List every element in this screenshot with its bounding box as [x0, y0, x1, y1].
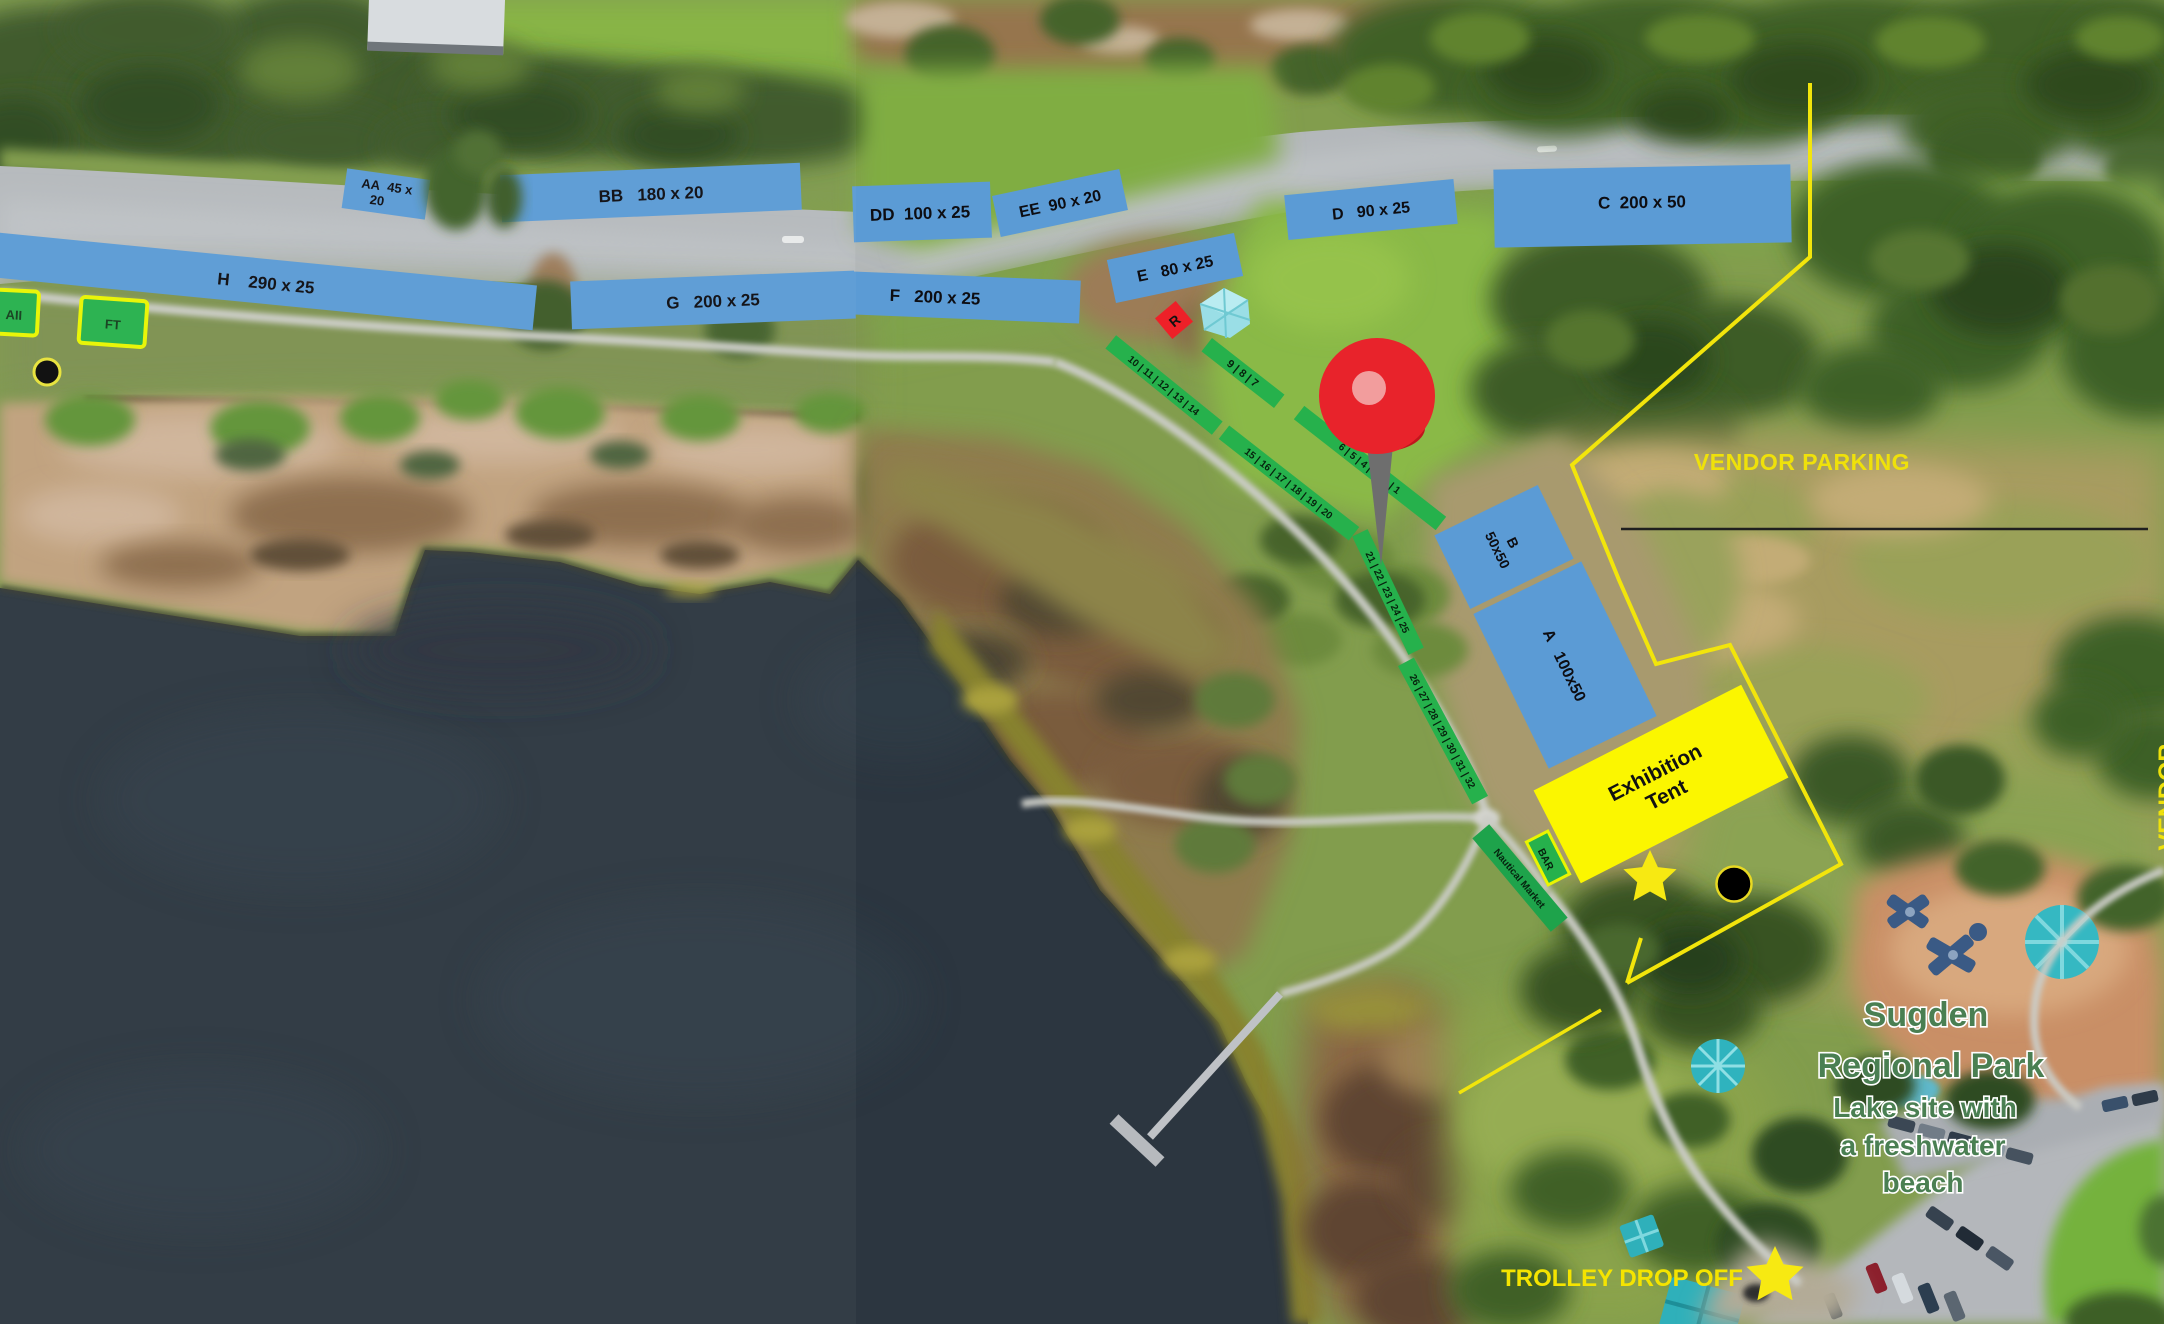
svg-text:TROLLEY DROP OFF: TROLLEY DROP OFF — [1501, 1265, 1743, 1292]
svg-text:VENDOR: VENDOR — [2154, 744, 2164, 851]
svg-text:VENDOR PARKING: VENDOR PARKING — [1694, 449, 1910, 475]
svg-text:Regional Park: Regional Park — [1818, 1047, 2045, 1085]
svg-text:F 200 x 25: F 200 x 25 — [889, 286, 980, 309]
svg-text:C 200 x 50: C 200 x 50 — [1598, 192, 1686, 213]
svg-text:a freshwater: a freshwater — [1841, 1130, 2006, 1161]
svg-text:DD 100 x 25: DD 100 x 25 — [870, 202, 971, 224]
svg-text:Lake site with: Lake site with — [1833, 1092, 2017, 1123]
svg-text:beach: beach — [1883, 1167, 1964, 1198]
svg-text:Sugden: Sugden — [1864, 996, 1989, 1034]
